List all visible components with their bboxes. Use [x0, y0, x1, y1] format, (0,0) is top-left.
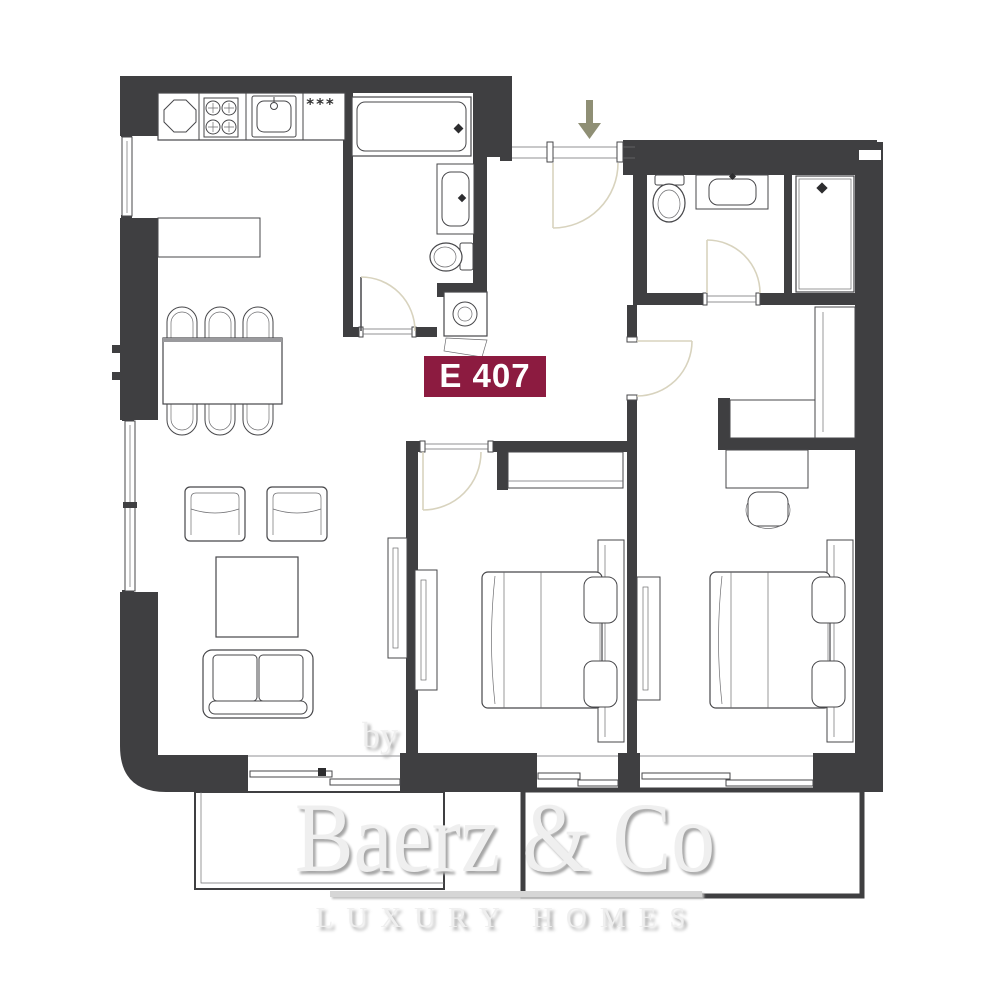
armchair [185, 487, 245, 541]
sideboard [158, 218, 260, 257]
entrance-arrow-icon [578, 100, 601, 139]
unit-label-text: E 407 [439, 357, 530, 394]
vanity-sink-icon [696, 173, 768, 209]
kitchen-sink-icon [252, 96, 296, 137]
wardrobe [637, 577, 660, 700]
double-bed [482, 540, 624, 742]
kitchen-counter: *** [158, 93, 345, 140]
floor-plan: *** [0, 0, 1000, 999]
vanity-sink-icon [437, 164, 474, 234]
watermark-brand: Baerz & Co [61, 788, 950, 888]
toilet-icon [653, 175, 685, 222]
coffee-table [216, 557, 298, 637]
entrance [512, 100, 635, 228]
living-area [185, 487, 327, 718]
dishwasher-marks: *** [306, 95, 336, 113]
bathroom-2 [653, 173, 854, 305]
dining-area [163, 307, 282, 435]
kitchen-bowl-icon [164, 100, 196, 132]
bathroom-1-door [359, 277, 416, 337]
watermark-tagline: LUXURY HOMES [0, 902, 1000, 935]
sofa [203, 650, 313, 718]
wardrobe [388, 538, 407, 658]
watermark-divider [330, 891, 702, 897]
desk [726, 450, 808, 488]
bathroom-2-door [703, 240, 760, 305]
toilet-icon [430, 243, 473, 271]
closet-shelf [508, 452, 623, 488]
desk-chair [746, 492, 790, 529]
bathtub-icon [352, 97, 471, 156]
bedroom-2 [627, 307, 855, 742]
washing-machine-icon [444, 292, 487, 357]
stove-icon [204, 98, 238, 137]
unit-label: E 407 [424, 356, 546, 397]
shower-icon [796, 176, 854, 292]
entrance-door [553, 163, 618, 228]
closet-shelf [815, 307, 855, 438]
bedroom-2-door [627, 337, 692, 400]
bedroom-1-door [420, 441, 493, 510]
double-bed [710, 540, 853, 742]
bathroom-1 [352, 97, 487, 357]
watermark-prefix: by [362, 714, 398, 756]
closet-shelf [730, 400, 815, 438]
armchair [267, 487, 327, 541]
wardrobe [415, 570, 437, 690]
dining-table [163, 338, 282, 404]
